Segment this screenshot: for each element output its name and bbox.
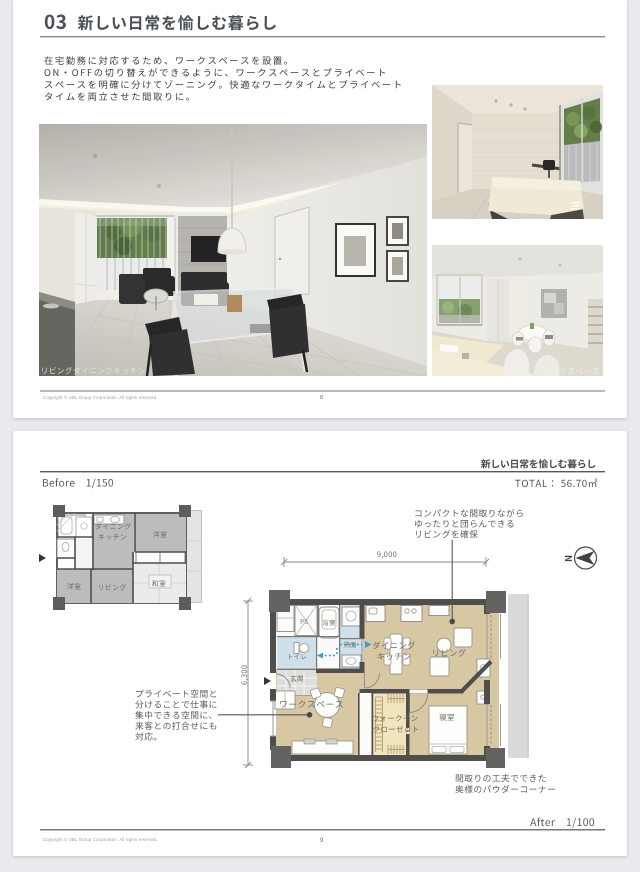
svg-text:Copyright © UBL Group Corporat: Copyright © UBL Group Corporation. All r… bbox=[43, 837, 158, 842]
svg-text:8: 8 bbox=[320, 395, 323, 401]
svg-text:Copyright © UBL Group Corporat: Copyright © UBL Group Corporation. All r… bbox=[43, 395, 158, 400]
svg-text:9: 9 bbox=[320, 838, 324, 844]
